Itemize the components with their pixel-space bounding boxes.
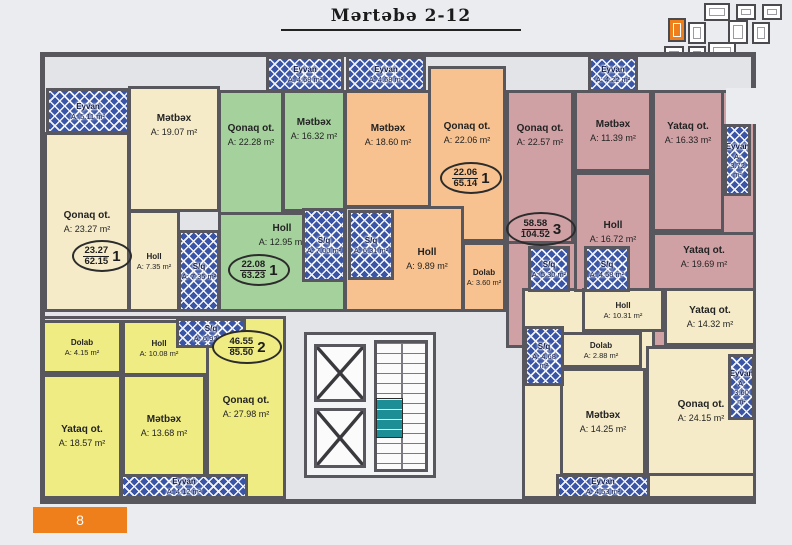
room-label: Mətbəx bbox=[147, 414, 181, 426]
elevator-icon bbox=[314, 344, 366, 402]
room-label: Holl bbox=[273, 223, 292, 235]
room-label: Mətbəx bbox=[157, 113, 191, 125]
page-number-badge: 8 bbox=[33, 507, 127, 533]
room-label: S/q bbox=[538, 342, 550, 351]
room-label: Yataq ot. bbox=[667, 121, 709, 133]
badge-room-count: 1 bbox=[112, 248, 120, 265]
room-area: A: 16.72 m² bbox=[590, 234, 637, 245]
area-badge-a2: 22.0863.23 1 bbox=[228, 254, 290, 286]
room-area: A: 7.35 m² bbox=[137, 262, 172, 271]
room-area: A: 4.58 m² bbox=[590, 270, 625, 279]
room-label: Yataq ot. bbox=[689, 305, 731, 317]
badge-living-area: 46.55 bbox=[228, 337, 254, 348]
room-label: Mətbəx bbox=[596, 119, 630, 131]
room-label: Mətbəx bbox=[586, 410, 620, 422]
room-label: Holl bbox=[418, 247, 437, 259]
balcony-a1-eyvan: Eyvan A: 5.11 m² bbox=[46, 88, 130, 134]
room-a4-sq1: S/q A: 5.30 m² bbox=[528, 246, 570, 292]
room-area: A: 11.39 m² bbox=[590, 133, 636, 144]
room-a1-qonaq: Qonaq ot. A: 23.27 m² bbox=[44, 132, 130, 312]
badge-total-area: 62.15 bbox=[84, 257, 108, 267]
area-badge-a1: 23.2762.15 1 bbox=[72, 240, 132, 272]
badge-living-area: 23.27 bbox=[83, 246, 109, 257]
elevator-icon bbox=[314, 408, 366, 468]
room-area: A: 19.07 m² bbox=[151, 127, 198, 138]
room-label: Yataq ot. bbox=[683, 245, 725, 257]
room-label: Qonaq ot. bbox=[444, 121, 491, 133]
room-label: S/q bbox=[601, 260, 613, 269]
room-area: A: 22.28 m² bbox=[228, 137, 275, 148]
room-area: A: 22.06 m² bbox=[444, 135, 491, 146]
badge-room-count: 1 bbox=[481, 170, 489, 187]
room-area: A: 3.60 m² bbox=[731, 379, 752, 406]
room-a6-metbex: Mətbəx A: 13.68 m² bbox=[122, 374, 206, 478]
page-number: 8 bbox=[76, 512, 84, 528]
room-label: Eyvan bbox=[172, 477, 196, 486]
room-label: Holl bbox=[604, 220, 623, 232]
room-a5-sq: S/q A: 4.68 m² bbox=[524, 326, 564, 386]
room-label: Eyvan bbox=[591, 477, 615, 486]
room-a4-sq2: S/q A: 4.58 m² bbox=[584, 246, 630, 292]
keyplan-block bbox=[736, 4, 756, 20]
room-area: A: 4.53 m² bbox=[586, 487, 621, 496]
room-label: Eyvan bbox=[374, 65, 398, 74]
room-area: A: 2.88 m² bbox=[584, 351, 619, 360]
keyplan-block bbox=[762, 4, 782, 20]
room-label: Dolab bbox=[71, 338, 93, 347]
badge-room-count: 2 bbox=[257, 339, 265, 356]
keyplan-block-active bbox=[668, 18, 686, 42]
balcony-a5-eyvan-right: Eyvan A: 3.60 m² bbox=[728, 354, 755, 420]
room-label: S/q bbox=[318, 236, 330, 245]
room-area: A: 4.68 m² bbox=[288, 75, 323, 84]
badge-living-area: 58.58 bbox=[522, 219, 548, 230]
room-area: A: 6.31 m² bbox=[354, 246, 389, 255]
keyplan-block bbox=[704, 3, 730, 21]
room-label: Qonaq ot. bbox=[64, 210, 111, 222]
balcony-a4-eyvan-right: Eyvan A: 3.72 m² bbox=[724, 124, 751, 196]
room-label: Holl bbox=[151, 339, 166, 348]
badge-living-area: 22.06 bbox=[452, 168, 478, 179]
room-area: A: 23.27 m² bbox=[64, 224, 111, 235]
room-a5-dolab: Dolab A: 2.88 m² bbox=[560, 332, 642, 368]
room-area: A: 4.68 m² bbox=[369, 75, 404, 84]
badge-living-area: 22.08 bbox=[240, 260, 266, 271]
room-area: A: 3.60 m² bbox=[467, 278, 502, 287]
room-area: A: 18.60 m² bbox=[365, 137, 412, 148]
balcony-a3-eyvan: Eyvan A: 4.68 m² bbox=[346, 56, 426, 92]
room-a4-metbex: Mətbəx A: 11.39 m² bbox=[574, 90, 652, 172]
room-a2-sq: S/q A: 7.00 m² bbox=[302, 208, 346, 282]
room-label: Eyvan bbox=[293, 65, 317, 74]
room-area: A: 13.68 m² bbox=[141, 428, 188, 439]
room-label: Dolab bbox=[473, 268, 495, 277]
room-label: S/q bbox=[543, 260, 555, 269]
room-label: Qonaq ot. bbox=[228, 123, 275, 135]
building-notch bbox=[726, 88, 758, 124]
room-area: A: 24.15 m² bbox=[678, 413, 725, 424]
room-a2-metbex: Mətbəx A: 16.32 m² bbox=[282, 90, 346, 212]
room-a3-dolab: Dolab A: 3.60 m² bbox=[462, 242, 506, 312]
area-badge-a4: 58.58104.52 3 bbox=[506, 212, 576, 246]
room-area: A: 18.57 m² bbox=[59, 438, 106, 449]
keyplan-block bbox=[728, 20, 748, 44]
floor-plan-page: Mərtəbə 2-12 Eyvan A: 5.11 m² Mətbəx A: … bbox=[0, 0, 792, 545]
room-a1-sq: S/q A: 7.35 m² bbox=[178, 230, 220, 312]
room-a3-sq: S/q A: 6.31 m² bbox=[348, 210, 394, 280]
keyplan-block bbox=[688, 22, 706, 44]
room-area: A: 4.68 m² bbox=[527, 352, 561, 370]
room-area: A: 12.95 m² bbox=[259, 237, 306, 248]
room-area: A: 19.69 m² bbox=[681, 259, 728, 270]
room-label: Holl bbox=[615, 301, 630, 310]
room-area: A: 16.32 m² bbox=[291, 131, 338, 142]
room-label: Eyvan bbox=[601, 65, 625, 74]
floor-title: Mərtəbə 2-12 bbox=[281, 6, 521, 31]
room-a5-holl: Holl A: 10.31 m² bbox=[582, 288, 664, 332]
room-area: A: 4.22 m² bbox=[596, 75, 631, 84]
room-area: A: 4.15 m² bbox=[65, 348, 100, 357]
room-a6-dolab: Dolab A: 4.15 m² bbox=[42, 320, 122, 374]
room-area: A: 7.35 m² bbox=[182, 272, 217, 281]
room-label: Holl bbox=[146, 252, 161, 261]
room-label: Qonaq ot. bbox=[517, 123, 564, 135]
room-area: A: 14.25 m² bbox=[580, 424, 627, 435]
keyplan-block bbox=[752, 22, 770, 44]
room-a1-holl: Holl A: 7.35 m² bbox=[128, 210, 180, 312]
balcony-a6-eyvan: Eyvan A: 4.12 m² bbox=[120, 474, 248, 499]
room-label: S/q bbox=[365, 236, 377, 245]
room-label: Yataq ot. bbox=[61, 424, 103, 436]
balcony-a5-eyvan-bottom: Eyvan A: 4.53 m² bbox=[556, 474, 650, 499]
room-area: A: 10.08 m² bbox=[140, 349, 179, 358]
room-area: A: 5.30 m² bbox=[532, 270, 567, 279]
room-label: Eyvan bbox=[726, 142, 750, 151]
room-a6-yataq: Yataq ot. A: 18.57 m² bbox=[42, 374, 122, 499]
room-label: Qonaq ot. bbox=[223, 395, 270, 407]
room-area: A: 9.89 m² bbox=[406, 261, 448, 272]
room-label: Eyvan bbox=[730, 369, 754, 378]
room-a4-yataq1: Yataq ot. A: 16.33 m² bbox=[652, 90, 724, 232]
room-label: Mətbəx bbox=[297, 117, 331, 129]
room-area: A: 3.72 m² bbox=[727, 152, 748, 179]
badge-total-area: 65.14 bbox=[453, 179, 477, 189]
balcony-a2-eyvan: Eyvan A: 4.68 m² bbox=[266, 56, 344, 92]
room-label: Qonaq ot. bbox=[678, 399, 725, 411]
badge-total-area: 104.52 bbox=[521, 230, 550, 240]
room-area: A: 7.00 m² bbox=[307, 246, 342, 255]
room-a5-yataq: Yataq ot. A: 14.32 m² bbox=[664, 288, 756, 346]
room-area: A: 5.11 m² bbox=[71, 112, 105, 121]
room-label: Eyvan bbox=[76, 102, 100, 111]
room-area: A: 4.12 m² bbox=[167, 487, 202, 496]
room-area: A: 10.31 m² bbox=[604, 311, 643, 320]
badge-room-count: 1 bbox=[269, 262, 277, 279]
room-area: A: 16.33 m² bbox=[665, 135, 712, 146]
room-area: A: 27.98 m² bbox=[223, 409, 270, 420]
area-badge-a3: 22.0665.14 1 bbox=[440, 162, 502, 194]
room-label: Mətbəx bbox=[371, 123, 405, 135]
badge-room-count: 3 bbox=[553, 221, 561, 238]
room-a3-metbex: Mətbəx A: 18.60 m² bbox=[344, 90, 432, 208]
room-label: S/q bbox=[193, 262, 205, 271]
room-area: A: 14.32 m² bbox=[687, 319, 734, 330]
badge-total-area: 63.23 bbox=[241, 271, 265, 281]
room-a1-metbex: Mətbəx A: 19.07 m² bbox=[128, 86, 220, 212]
badge-total-area: 85.50 bbox=[229, 348, 253, 358]
stair-flight-teal bbox=[376, 398, 403, 438]
room-label: S/q bbox=[205, 324, 217, 333]
balcony-a4-eyvan-top: Eyvan A: 4.22 m² bbox=[588, 56, 638, 92]
room-area: A: 22.57 m² bbox=[517, 137, 564, 148]
room-a5-metbex: Mətbəx A: 14.25 m² bbox=[560, 368, 646, 476]
area-badge-a6: 46.5585.50 2 bbox=[212, 330, 282, 364]
room-label: Dolab bbox=[590, 341, 612, 350]
